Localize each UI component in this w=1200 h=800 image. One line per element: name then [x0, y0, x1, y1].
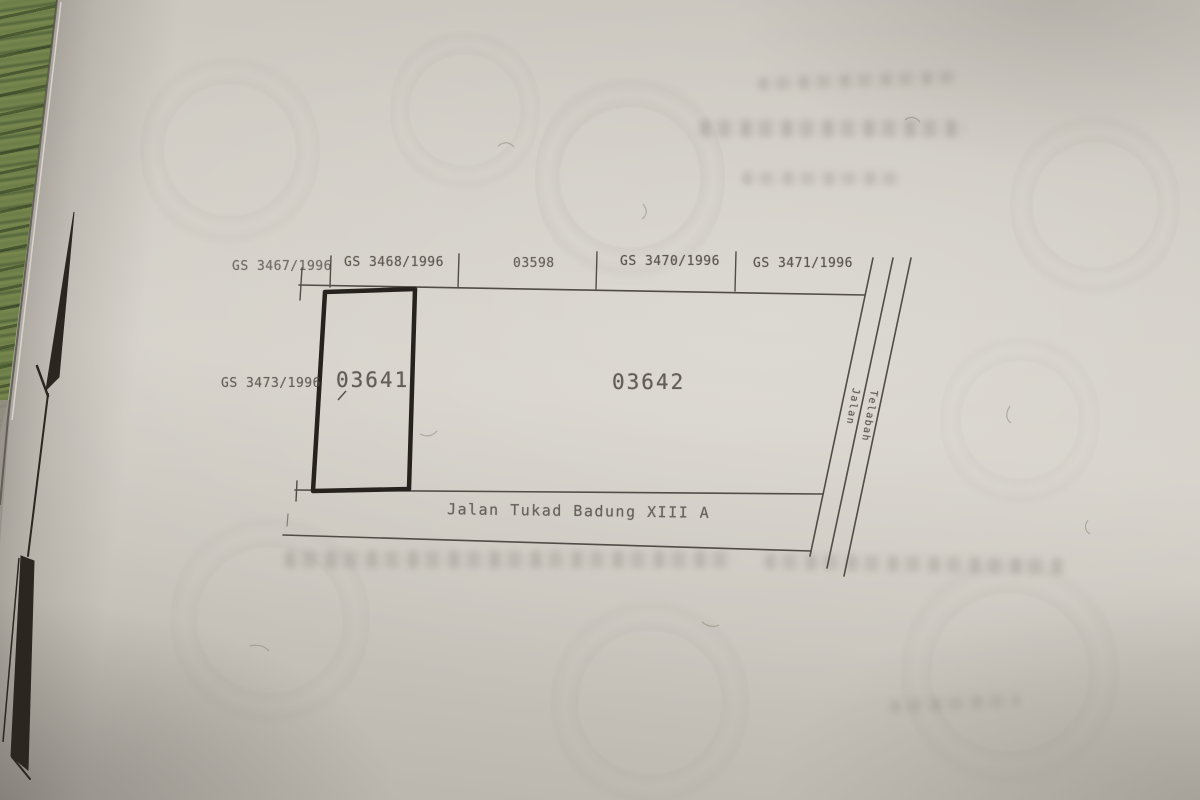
road-line — [827, 258, 893, 568]
parcel-label-gs-3471-1996: GS 3471/1996 — [753, 256, 853, 271]
parcel-tick — [596, 252, 597, 289]
parcel-tick — [296, 481, 297, 501]
plot-number-03642: 03642 — [612, 370, 685, 394]
plan-drawing — [0, 0, 1200, 800]
parcel-tick — [458, 254, 459, 288]
stray-ink-mark — [338, 391, 346, 400]
street-name-bottom: Jalan Tukad Badung XIII A — [447, 500, 711, 522]
north-arrow — [3, 212, 74, 779]
street-lower-line — [283, 535, 811, 551]
parcel-label-gs-3467-1996: GS 3467/1996 — [232, 259, 332, 274]
photo-of-cadastral-plan: GS 3467/1996 GS 3468/1996 03598 GS 3470/… — [0, 0, 1200, 800]
plot-number-03641: 03641 — [336, 368, 409, 392]
paper-edge-line — [0, 0, 57, 505]
parcel-label-gs-3473-1996: GS 3473/1996 — [221, 376, 321, 391]
parcel-tick — [735, 252, 736, 291]
parcel-tick — [287, 514, 288, 526]
parcel-label-gs-3468-1996: GS 3468/1996 — [344, 255, 444, 270]
road-line — [810, 258, 873, 556]
parcel-label-03598: 03598 — [513, 256, 555, 271]
parcel-label-gs-3470-1996: GS 3470/1996 — [620, 254, 720, 269]
